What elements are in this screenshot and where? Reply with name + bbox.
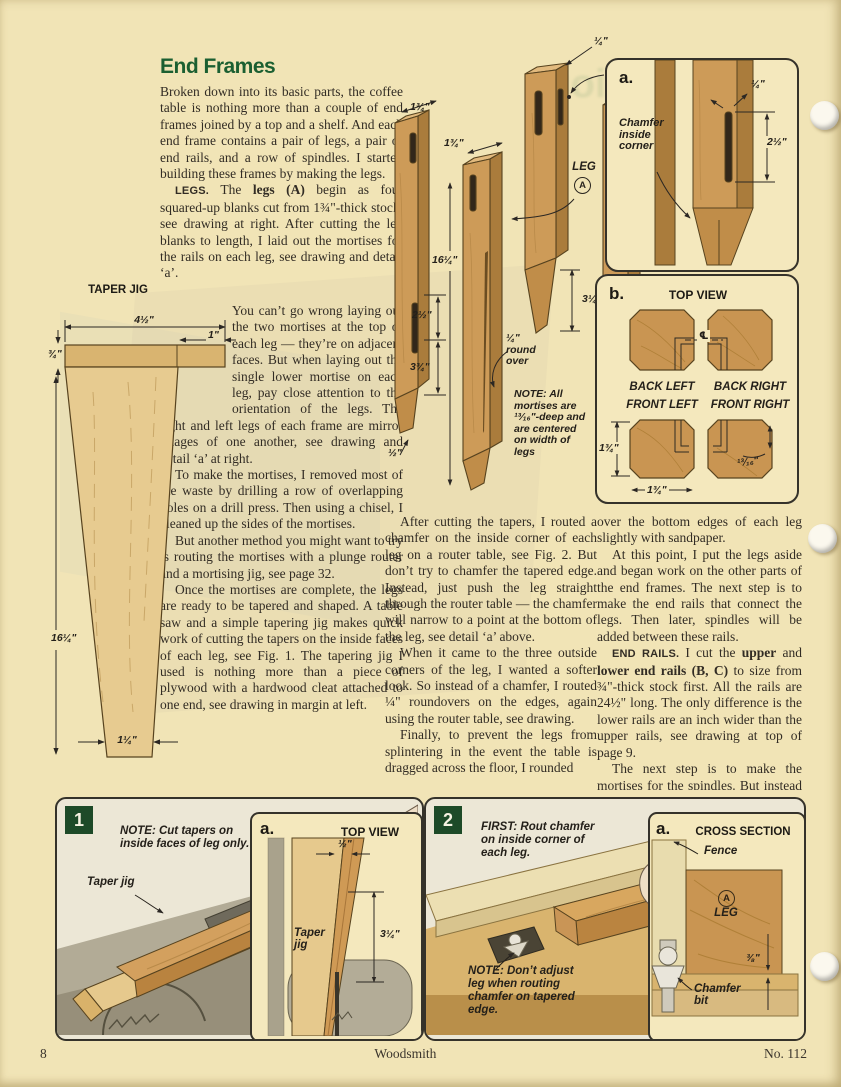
taper-jig-title: TAPER JIG (86, 284, 150, 297)
paragraph: Broken down into its basic parts, the co… (160, 84, 403, 182)
paragraph: END RAILS. I cut the upper and lower end… (597, 645, 802, 761)
detail-b-label: b. (609, 284, 624, 304)
centerline-symbol: ℄ (697, 330, 710, 342)
part-letter-a: A (718, 890, 735, 907)
paragraph: At this point, I put the legs aside and … (597, 547, 802, 645)
dim-block-height: 1¾" (597, 442, 621, 454)
leg-label: LEG (708, 908, 744, 920)
paragraph: After cutting the tapers, I routed a cha… (385, 514, 597, 645)
block-label-back-right: BACK RIGHT (702, 382, 798, 394)
dim-inset-taper: 3¼" (378, 928, 402, 940)
detail-b-title: TOP VIEW (657, 288, 739, 302)
block-label-front-left: FRONT LEFT (614, 400, 710, 412)
figure-1-number: 1 (65, 806, 93, 834)
paragraph: Finally, to prevent the legs from splint… (385, 727, 597, 776)
figure-2-number: 2 (434, 806, 462, 834)
paragraph: When it came to the three outside corner… (385, 645, 597, 727)
figure-2-inset-a: a. CROSS SECTION Fence A LEG ⅜" Chamfer … (648, 812, 806, 1041)
chamfer-bit-callout: Chamfer bit (694, 984, 752, 1007)
inset-a-title: TOP VIEW (330, 825, 410, 839)
taper-jig-art (48, 282, 240, 772)
article-column-1-top: Broken down into its basic parts, the co… (160, 84, 403, 282)
page-footer: 8 Woodsmith No. 112 (40, 1046, 807, 1062)
inset-a-label: a. (656, 819, 670, 839)
detail-a-art (607, 60, 795, 268)
roundover-label: ¼" round over (506, 333, 552, 368)
dim-block-width: 1¾" (645, 484, 669, 496)
article-column-2: After cutting the tapers, I routed a cha… (385, 514, 597, 790)
dim-jig-offset: 1" (208, 329, 219, 341)
inset-taper-jig-label: Taper jig (294, 928, 340, 951)
part-letter-a: A (574, 177, 591, 194)
dim-chamfer-end: ½" (388, 447, 402, 459)
footer-magazine-name: Woodsmith (374, 1046, 436, 1062)
dim-leg-blank-1: 1¾" (410, 101, 430, 113)
paragraph: LEGS. The legs (A) begin as four squared… (160, 182, 403, 281)
paragraph: over the bottom edges of each leg slight… (597, 514, 802, 547)
leg-callout-label: LEG (561, 162, 607, 174)
fence-callout: Fence (704, 846, 737, 858)
taper-jig-drawing: TAPER JIG 4½" 1" ¾" 16¼" 1¼" (48, 282, 240, 772)
mortise-note: NOTE: All mortises are ¹³⁄₁₆"-deep and a… (514, 389, 592, 458)
note-label: NOTE: (468, 965, 504, 977)
dim-lower-mortise: 3¾" (410, 361, 430, 373)
magazine-page: Construction End Frames Broken down into… (0, 0, 841, 1087)
figure-1-note: NOTE: Cut tapers on inside faces of leg … (120, 825, 260, 851)
taper-jig-callout: Taper jig (87, 877, 137, 889)
dim-jig-length: 16¼" (49, 632, 78, 644)
dim-inset-offset: ½" (338, 838, 352, 850)
dim-jig-foot: 1¼" (106, 734, 148, 746)
dim-detail-a-length: 2½" (765, 136, 789, 148)
inset-a-title: CROSS SECTION (688, 826, 798, 838)
detail-b-box: b. TOP VIEW ℄ BACK LEFT BACK RIGHT FRONT… (595, 274, 799, 504)
hole-punch (810, 952, 839, 981)
figure-2-first-note: FIRST: Rout chamfer on inside corner of … (481, 821, 603, 860)
figure-2-note: NOTE: Don’t adjust leg when routing cham… (468, 965, 580, 1017)
dim-mortise-inset: ¼" (594, 35, 608, 47)
dim-upper-mortise: 2½" (412, 309, 432, 321)
detail-a-label: a. (619, 68, 633, 88)
first-label: FIRST: (481, 821, 517, 833)
dim-leg-blank-2: 1¾" (444, 137, 464, 149)
block-label-back-left: BACK LEFT (614, 382, 710, 394)
note-label: NOTE: (120, 825, 156, 837)
note-label: NOTE: (514, 388, 547, 400)
dim-jig-cleat: ¾" (48, 348, 62, 360)
footer-page-number: 8 (40, 1046, 47, 1062)
dim-chamfer-depth: ⅜" (746, 952, 760, 964)
figure-2: 2 FIRST: Rout chamfer on inside corner o… (424, 797, 806, 1041)
figure-1-inset-a: a. TOP VIEW ½" Taper jig 3¼" (250, 812, 423, 1041)
hole-punch (810, 101, 839, 130)
inset-a-label: a. (260, 819, 274, 839)
figure-1-inset-art (252, 814, 417, 1036)
paragraph: The next step is to make the mortises fo… (597, 761, 802, 790)
page-title: End Frames (160, 55, 275, 79)
block-label-front-right: FRONT RIGHT (702, 400, 798, 412)
article-column-3: over the bottom edges of each leg slight… (597, 514, 802, 790)
dim-jig-width: 4½" (122, 314, 166, 326)
dim-detail-a-width: ¼" (751, 78, 765, 90)
chamfer-callout: Chamfer inside corner (619, 118, 683, 153)
hole-punch (808, 524, 837, 553)
footer-issue-number: No. 112 (764, 1046, 807, 1062)
dim-leg-length: 16¼" (430, 254, 459, 266)
figure-1: 1 NOTE: Cut tapers on inside faces of le… (55, 797, 424, 1041)
detail-a-box: a. Chamfer inside corner ¼" 2½" (605, 58, 799, 272)
